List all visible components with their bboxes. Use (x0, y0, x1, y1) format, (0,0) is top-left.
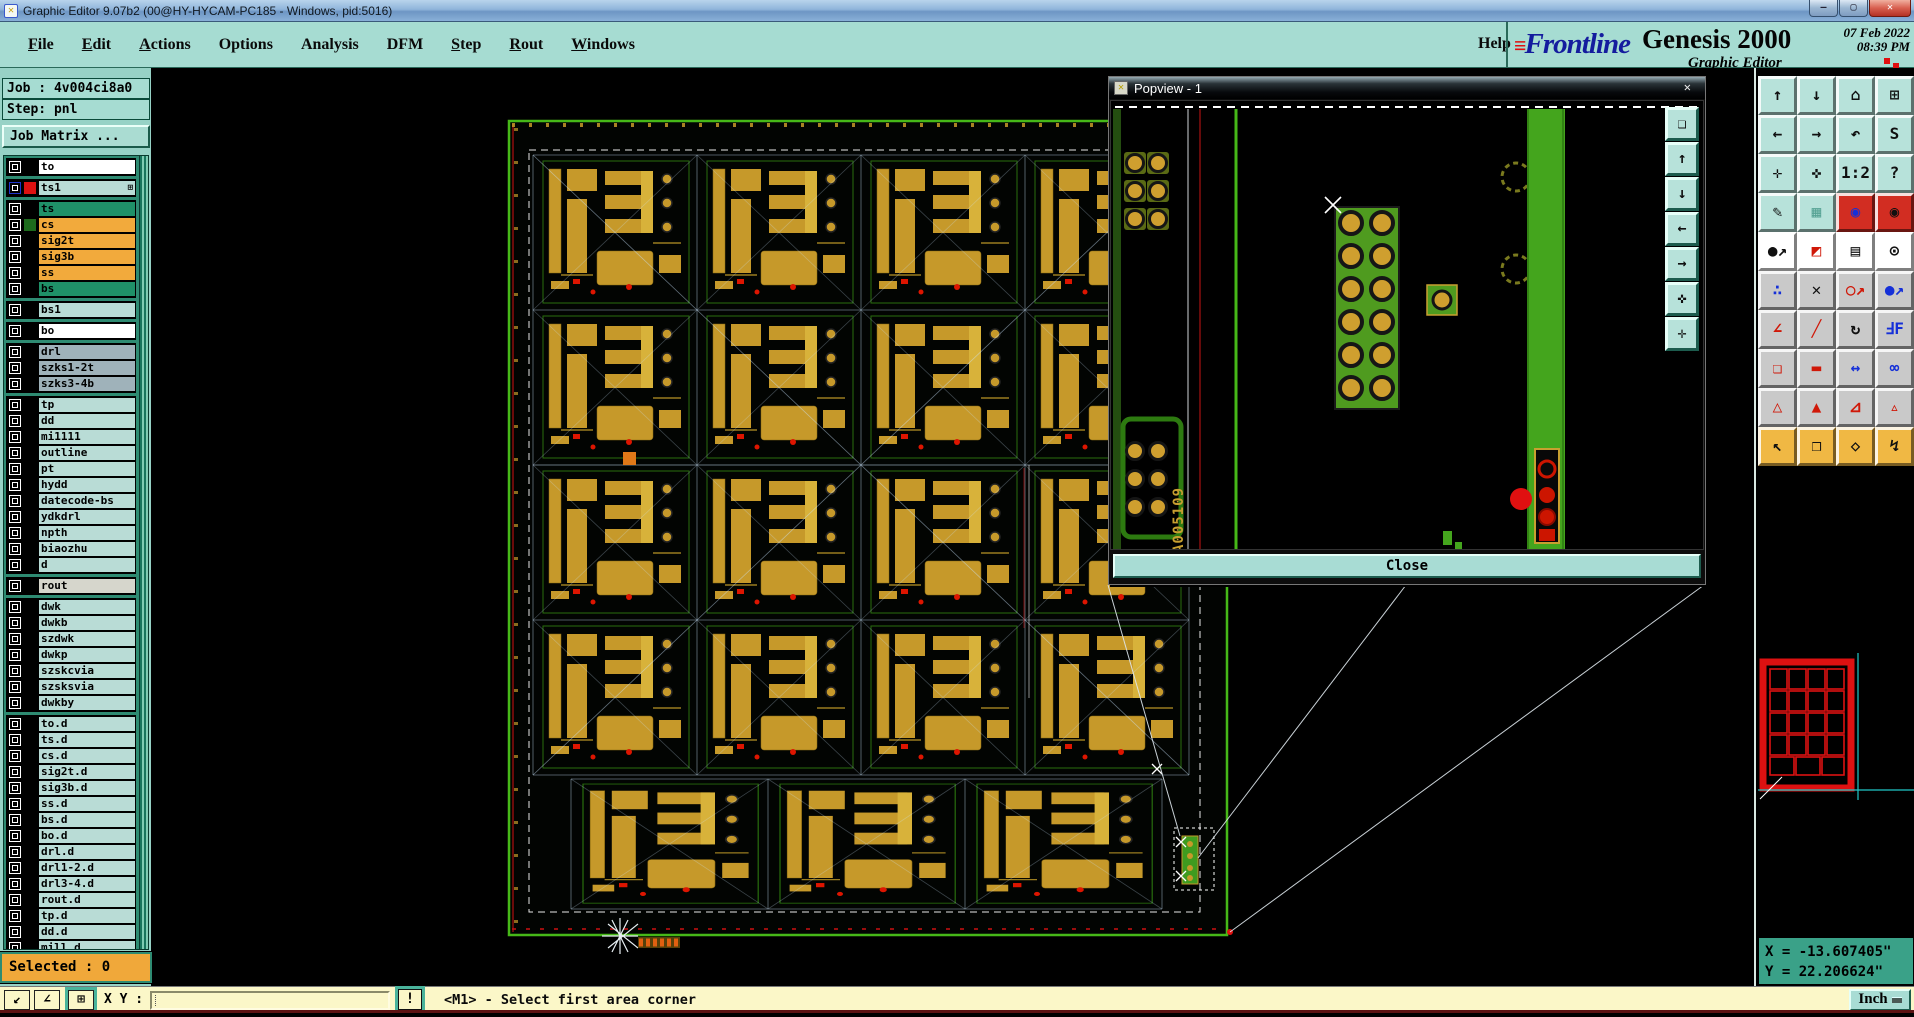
pan-down-button[interactable]: ↓ (1797, 76, 1836, 115)
layer-row[interactable]: bo.d (7, 828, 135, 844)
layer-group: bo (6, 322, 136, 340)
layer-checkbox[interactable] (9, 782, 21, 794)
layer-name: sig3b.d (41, 781, 87, 795)
layer-name: ydkdrl (41, 510, 81, 524)
layer-checkbox[interactable] (9, 511, 21, 523)
rotate-button[interactable]: ↻ (1836, 310, 1875, 349)
layer-name: d (41, 558, 48, 572)
layer-color-swatch[interactable] (24, 766, 36, 778)
layer-color-swatch[interactable] (24, 203, 36, 215)
layer-name: dwkp (41, 648, 68, 662)
layer-color-swatch[interactable] (24, 697, 36, 709)
xy-input[interactable] (150, 991, 390, 1010)
popview-icon: ✕ (1114, 81, 1128, 95)
layer-checkbox[interactable] (9, 750, 21, 762)
layer-row[interactable]: rout (7, 578, 135, 594)
layer-row[interactable]: szks3-4b (7, 376, 135, 392)
layer-row[interactable]: pt (7, 461, 135, 477)
layer-name: szsksvia (41, 680, 94, 694)
mirror-button[interactable]: ℲF (1875, 310, 1914, 349)
pan-left-button[interactable]: ← (1665, 212, 1699, 246)
layer-checkbox[interactable] (9, 325, 21, 337)
layer-name: szdwk (41, 632, 74, 646)
layer-checkbox[interactable] (9, 235, 21, 247)
sidebar: Job : 4v004ci8a0 Step: pnl Job Matrix ..… (0, 68, 152, 1013)
layer-checkbox[interactable] (9, 617, 21, 629)
coord-x: X = -13.607405" (1765, 942, 1913, 962)
menu-item[interactable]: Windows (557, 36, 649, 54)
layer-row[interactable]: tp.d (7, 908, 135, 924)
layer-name: pt (41, 462, 54, 476)
layer-row[interactable]: npth (7, 525, 135, 541)
brand-area: ≡Frontline Genesis 2000 Graphic Editor 0… (1508, 22, 1914, 68)
layer-color-swatch[interactable] (24, 814, 36, 826)
status-led-icon (1884, 58, 1890, 64)
single-pad (1427, 285, 1457, 315)
layer-color-swatch[interactable] (24, 431, 36, 443)
layer-group: drl szks1-2t szks3-4b (6, 343, 136, 393)
layer-color-swatch[interactable] (24, 543, 36, 555)
menu-bar: File Edit Actions Options Analysis DFM S… (0, 22, 1914, 68)
dropdown-indicator-icon (1892, 997, 1902, 1003)
layer-name: sig2t (41, 234, 74, 248)
scale-1-2-button[interactable]: 1:2 (1836, 154, 1875, 193)
help-button[interactable]: ? (1875, 154, 1914, 193)
units-dropdown[interactable]: Inch (1849, 989, 1911, 1011)
layer-color-swatch[interactable] (24, 910, 36, 922)
layer-group: to (6, 158, 136, 176)
layer-color-swatch[interactable] (24, 346, 36, 358)
layer-group: rout (6, 577, 136, 595)
layer-row[interactable]: to.d (7, 716, 135, 732)
layer-checkbox[interactable] (9, 910, 21, 922)
dashed-scale-bar (638, 937, 680, 948)
layer-name: ss (41, 266, 54, 280)
layer-checkbox[interactable] (9, 182, 21, 194)
expand-view-button[interactable]: ✛ (1665, 317, 1699, 351)
measure-width-button[interactable]: ↔ (1836, 349, 1875, 388)
layer-checkbox[interactable] (9, 543, 21, 555)
menu-items: File Edit Actions Options Analysis DFM S… (14, 22, 649, 68)
select-net-button[interactable]: ↯ (1875, 427, 1914, 466)
layer-name: rout.d (41, 893, 81, 907)
layer-checkbox[interactable] (9, 601, 21, 613)
trace-segment-button[interactable]: ▬ (1797, 349, 1836, 388)
layer-name: ss.d (41, 797, 68, 811)
layer-checkbox[interactable] (9, 878, 21, 890)
layer-row[interactable]: d (7, 557, 135, 573)
layer-checkbox[interactable] (9, 697, 21, 709)
layer-row[interactable]: bs (7, 281, 135, 297)
main-toolbar: ↑ ↓ ⌂ ⊞ ← → ↶ S ✛ ✜ 1:2 ? (1758, 76, 1914, 466)
status-message: <M1> - Select first area corner (444, 992, 696, 1008)
angle-measure-button[interactable]: ∠ (1758, 310, 1797, 349)
layer-color-swatch[interactable] (24, 251, 36, 263)
layer-row[interactable]: dwk (7, 599, 135, 615)
layer-checkbox[interactable] (9, 251, 21, 263)
delete-button[interactable]: ✕ (1797, 271, 1836, 310)
layer-name: outline (41, 446, 87, 460)
logo-arrows-icon: ≡ (1514, 33, 1525, 58)
graphic-options-button[interactable]: ✎ (1758, 193, 1797, 232)
popview-title: Popview - 1 (1134, 81, 1202, 96)
layer-color-swatch[interactable] (24, 846, 36, 858)
layer-name: sig2t.d (41, 765, 87, 779)
layer-row[interactable]: sig3b (7, 249, 135, 265)
layer-status-button[interactable]: ◉ (1875, 193, 1914, 232)
layer-color-swatch[interactable] (24, 681, 36, 693)
layer-row[interactable]: szsksvia (7, 679, 135, 695)
measure-squares-button[interactable]: ◩ (1797, 232, 1836, 271)
menu-item[interactable]: Analysis (287, 36, 373, 54)
layer-name: dwkb (41, 616, 68, 630)
layer-checkbox[interactable] (9, 718, 21, 730)
menu-item[interactable]: Options (205, 36, 287, 54)
layer-row[interactable]: drl1-2.d (7, 860, 135, 876)
app-icon: ✕ (4, 4, 18, 18)
menu-item[interactable]: Actions (125, 36, 205, 54)
layer-checkbox[interactable] (9, 766, 21, 778)
layer-checkbox[interactable] (9, 734, 21, 746)
layer-row[interactable]: biaozhu (7, 541, 135, 557)
layer-checkbox[interactable] (9, 463, 21, 475)
zoom-out-button[interactable]: ✛ (1758, 154, 1797, 193)
pan-down-button[interactable]: ↓ (1665, 177, 1699, 211)
board-serial-text: A005109 (1171, 487, 1187, 549)
menu-item[interactable]: Step (437, 36, 495, 54)
capture-view-button[interactable]: ❏ (1665, 107, 1699, 141)
layer-row[interactable]: ts (7, 201, 135, 217)
layer-group: ts1⊞ (6, 179, 136, 197)
layer-row[interactable]: ss (7, 265, 135, 281)
layer-list-scrollbar[interactable] (139, 156, 148, 949)
layer-name: tp (41, 398, 54, 412)
layer-checkbox[interactable] (9, 495, 21, 507)
layer-name: datecode-bs (41, 494, 114, 508)
layer-group: dwk dwkb szdwk dwkp (6, 598, 136, 712)
layer-name: hydd (41, 478, 68, 492)
layer-row[interactable]: tp (7, 397, 135, 413)
command-bar: ↙ ∠ ⊞ X Y : ! <M1> - Select first area c… (0, 986, 1914, 1013)
previous-view-button[interactable]: ↶ (1836, 115, 1875, 154)
layer-row[interactable]: bs1 (7, 302, 135, 318)
layer-color-swatch[interactable] (24, 219, 36, 231)
layer-name: dwkby (41, 696, 74, 710)
select-poly-button[interactable]: ◇ (1836, 427, 1875, 466)
layer-colors-button[interactable]: ◉ (1836, 193, 1875, 232)
layer-name: drl3-4.d (41, 877, 94, 891)
layer-row[interactable]: outline (7, 445, 135, 461)
serpentine-view-button[interactable]: S (1875, 115, 1914, 154)
job-matrix-button[interactable]: Job Matrix ... (2, 125, 150, 148)
triangle-tall-tool-button[interactable]: ▲ (1797, 388, 1836, 427)
select-feature-button[interactable]: ●↗ (1758, 232, 1797, 271)
layer-checkbox[interactable] (9, 415, 21, 427)
layer-color-swatch[interactable] (24, 942, 36, 950)
layer-checkbox[interactable] (9, 283, 21, 295)
layer-row[interactable]: szdwk (7, 631, 135, 647)
layer-color-swatch[interactable] (24, 750, 36, 762)
pan-right-button[interactable]: → (1665, 247, 1699, 281)
layer-name: to.d (41, 717, 68, 731)
layer-name: szks3-4b (41, 377, 94, 391)
layer-name: dd (41, 414, 54, 428)
layer-checkbox[interactable] (9, 346, 21, 358)
split-xy-button[interactable]: ⊞ (1875, 76, 1914, 115)
layer-color-swatch[interactable] (24, 479, 36, 491)
layer-row[interactable]: cs.d (7, 748, 135, 764)
window-title: Graphic Editor 9.07b2 (00@HY-HYCAM-PC185… (23, 4, 392, 18)
layer-row[interactable]: sig3b.d (7, 780, 135, 796)
layer-name: sig3b (41, 250, 74, 264)
layer-name: biaozhu (41, 542, 87, 556)
text-caret (155, 995, 156, 1006)
layer-group: ts cs sig2t sig3b (6, 200, 136, 298)
layer-badge-icon: ⊞ (128, 181, 133, 195)
layer-color-swatch[interactable] (24, 463, 36, 475)
triangle-trap-tool-button[interactable]: ⊿ (1836, 388, 1875, 427)
restore-button[interactable]: ▢ (1839, 0, 1868, 17)
selected-count-bar: Selected : 0 (0, 952, 152, 983)
layer-checkbox[interactable] (9, 894, 21, 906)
layer-row[interactable]: szks1-2t (7, 360, 135, 376)
layer-row[interactable]: mill.d (7, 940, 135, 950)
layer-name: mi1111 (41, 430, 81, 444)
layer-checkbox[interactable] (9, 219, 21, 231)
application-window: ✕ Graphic Editor 9.07b2 (00@HY-HYCAM-PC1… (0, 0, 1914, 1013)
pan-left-button[interactable]: ← (1758, 115, 1797, 154)
layer-color-swatch[interactable] (24, 878, 36, 890)
pan-right-button[interactable]: → (1797, 115, 1836, 154)
popview-drawing: A005109 (1111, 101, 1703, 549)
right-column: ↑ ↓ ⌂ ⊞ ← → ↶ S ✛ ✜ 1:2 ? (1756, 68, 1914, 1013)
layer-checkbox[interactable] (9, 161, 21, 173)
layer-row[interactable]: cs (7, 217, 135, 233)
layer-checkbox[interactable] (9, 665, 21, 677)
net-points-button[interactable]: ∴ (1758, 271, 1797, 310)
menu-item[interactable]: Rout (495, 36, 557, 54)
layer-checkbox[interactable] (9, 681, 21, 693)
layer-row[interactable]: hydd (7, 477, 135, 493)
layer-row[interactable]: bo (7, 323, 135, 339)
layer-color-swatch[interactable] (24, 665, 36, 677)
layer-color-swatch[interactable] (24, 304, 36, 316)
select-frame-button[interactable]: ❒ (1797, 427, 1836, 466)
move-feature-button[interactable]: ●↗ (1875, 271, 1914, 310)
layer-group: tp dd mi1111 outline (6, 396, 136, 574)
layer-checkbox[interactable] (9, 942, 21, 950)
home-view-button[interactable]: ⌂ (1836, 76, 1875, 115)
window-titlebar[interactable]: ✕ Graphic Editor 9.07b2 (00@HY-HYCAM-PC1… (0, 0, 1914, 22)
layer-color-swatch[interactable] (24, 399, 36, 411)
center-view-button[interactable]: ✜ (1665, 282, 1699, 316)
layer-checkbox[interactable] (9, 362, 21, 374)
layer-color-swatch[interactable] (24, 580, 36, 592)
layer-checkbox[interactable] (9, 527, 21, 539)
layer-checkbox[interactable] (9, 846, 21, 858)
layer-row[interactable]: szskcvia (7, 663, 135, 679)
layer-color-swatch[interactable] (24, 926, 36, 938)
layer-checkbox[interactable] (9, 447, 21, 459)
layer-name: drl (41, 345, 61, 359)
popview-toolbar: ❏ ↑ ↓ ← → ✜ ✛ (1665, 107, 1700, 352)
layer-row[interactable]: sig2t (7, 233, 135, 249)
layer-row[interactable]: rout.d (7, 892, 135, 908)
snap-angle-button[interactable]: ∠ (34, 990, 60, 1010)
layer-checkbox[interactable] (9, 649, 21, 661)
layer-group: bs1 (6, 301, 136, 319)
layer-color-swatch[interactable] (24, 862, 36, 874)
copy-to-layer-button[interactable]: ❏ (1758, 349, 1797, 388)
layer-checkbox[interactable] (9, 633, 21, 645)
triangle-base-tool-button[interactable]: ▵ (1875, 388, 1914, 427)
select-area-button[interactable]: ⊙ (1875, 232, 1914, 271)
layer-row[interactable]: dd.d (7, 924, 135, 940)
layer-color-swatch[interactable] (24, 734, 36, 746)
layer-name: szks1-2t (41, 361, 94, 375)
layer-row[interactable]: sig2t.d (7, 764, 135, 780)
layer-checkbox[interactable] (9, 203, 21, 215)
layer-row[interactable]: dwkb (7, 615, 135, 631)
layer-name: drl1-2.d (41, 861, 94, 875)
layer-color-swatch[interactable] (24, 894, 36, 906)
layer-row[interactable]: ydkdrl (7, 509, 135, 525)
layer-row[interactable]: drl (7, 344, 135, 360)
layer-name: bs (41, 282, 54, 296)
select-single-button[interactable]: ↖ (1758, 427, 1797, 466)
layer-color-swatch[interactable] (24, 161, 36, 173)
layer-color-swatch[interactable] (24, 267, 36, 279)
layer-row[interactable]: dwkp (7, 647, 135, 663)
layer-color-swatch[interactable] (24, 559, 36, 571)
frontline-logo: ≡Frontline (1514, 28, 1630, 61)
grid-button[interactable]: ▦ (1797, 193, 1836, 232)
layer-row[interactable]: to (7, 159, 135, 175)
menu-item[interactable]: File (14, 36, 68, 54)
time-text: 08:39 PM (1832, 40, 1910, 54)
snap-corner-button[interactable]: ↙ (4, 990, 30, 1010)
zoom-in-button[interactable]: ✜ (1797, 154, 1836, 193)
layer-row[interactable]: ts.d (7, 732, 135, 748)
layer-color-swatch[interactable] (24, 378, 36, 390)
layer-color-swatch[interactable] (24, 511, 36, 523)
layer-checkbox[interactable] (9, 399, 21, 411)
layer-color-swatch[interactable] (24, 235, 36, 247)
layer-checkbox[interactable] (9, 798, 21, 810)
layer-name: bo.d (41, 829, 68, 843)
layer-row[interactable]: datecode-bs (7, 493, 135, 509)
layer-color-swatch[interactable] (24, 798, 36, 810)
layer-color-swatch[interactable] (24, 601, 36, 613)
minimize-button[interactable]: — (1809, 0, 1838, 17)
layer-name: bs1 (41, 303, 61, 317)
date-text: 07 Feb 2022 (1832, 26, 1910, 40)
layer-checkbox[interactable] (9, 431, 21, 443)
layer-checkbox[interactable] (9, 814, 21, 826)
layer-checkbox[interactable] (9, 580, 21, 592)
product-name: Genesis 2000 (1642, 24, 1791, 55)
layer-checkbox[interactable] (9, 479, 21, 491)
coord-y: Y = 22.206624" (1765, 962, 1913, 982)
xy-label: X Y : (104, 992, 143, 1007)
layer-color-swatch[interactable] (24, 415, 36, 427)
layer-color-swatch[interactable] (24, 782, 36, 794)
layer-color-swatch[interactable] (24, 182, 36, 194)
layer-color-swatch[interactable] (24, 447, 36, 459)
layer-row[interactable]: bs.d (7, 812, 135, 828)
popview-close-button[interactable]: Close (1113, 554, 1701, 578)
layer-color-swatch[interactable] (24, 633, 36, 645)
layer-name: ts (41, 202, 54, 216)
layer-row[interactable]: dwkby (7, 695, 135, 711)
layer-row[interactable]: dd (7, 413, 135, 429)
layer-row[interactable]: ts1⊞ (7, 180, 135, 196)
layer-checkbox[interactable] (9, 559, 21, 571)
layer-checkbox[interactable] (9, 267, 21, 279)
edge-marker (623, 452, 636, 465)
menu-item[interactable]: DFM (373, 36, 437, 54)
layer-row[interactable]: mi1111 (7, 429, 135, 445)
overview-thumbnail[interactable] (1758, 653, 1914, 800)
quadrant-mode-button[interactable]: ⊞ (68, 990, 94, 1010)
layer-color-swatch[interactable] (24, 830, 36, 842)
layer-name: to (41, 160, 54, 174)
ruler-button[interactable]: ▤ (1836, 232, 1875, 271)
layer-name: cs (41, 218, 54, 232)
layer-color-swatch[interactable] (24, 283, 36, 295)
layer-checkbox[interactable] (9, 830, 21, 842)
window-controls: — ▢ ✕ (1808, 0, 1911, 17)
popview-close-x-icon[interactable]: ✕ (1684, 80, 1691, 94)
pan-up-button[interactable]: ↑ (1665, 142, 1699, 176)
layer-color-swatch[interactable] (24, 325, 36, 337)
layer-group: to.d ts.d cs.d sig2t.d (6, 715, 136, 950)
layer-name: szskcvia (41, 664, 94, 678)
pan-up-button[interactable]: ↑ (1758, 76, 1797, 115)
triangle-tool-button[interactable]: △ (1758, 388, 1797, 427)
menu-item[interactable]: Edit (68, 36, 125, 54)
prompt-button[interactable]: ! (398, 989, 422, 1010)
layer-color-swatch[interactable] (24, 362, 36, 374)
touching-copper-button[interactable]: ∞ (1875, 349, 1914, 388)
layer-row[interactable]: drl.d (7, 844, 135, 860)
layer-color-swatch[interactable] (24, 718, 36, 730)
job-label: Job : 4v004ci8a0 (2, 78, 150, 99)
layer-checkbox[interactable] (9, 862, 21, 874)
close-button[interactable]: ✕ (1869, 0, 1911, 17)
center-pad-array (1325, 197, 1399, 409)
layer-color-swatch[interactable] (24, 495, 36, 507)
layer-checkbox[interactable] (9, 926, 21, 938)
layer-checkbox[interactable] (9, 378, 21, 390)
layer-row[interactable]: drl3-4.d (7, 876, 135, 892)
layer-checkbox[interactable] (9, 304, 21, 316)
popview-canvas[interactable]: A005109 (1110, 100, 1704, 550)
coordinate-readout: X = -13.607405" Y = 22.206624" (1758, 937, 1914, 985)
popview-window: ✕ Popview - 1 ✕ (1108, 76, 1706, 585)
layer-name: drl.d (41, 845, 74, 859)
layer-color-swatch[interactable] (24, 527, 36, 539)
copy-feature-button[interactable]: ○↗ (1836, 271, 1875, 310)
layer-color-swatch[interactable] (24, 617, 36, 629)
layer-color-swatch[interactable] (24, 649, 36, 661)
overview-drawing (1758, 653, 1914, 800)
layer-row[interactable]: ss.d (7, 796, 135, 812)
popview-titlebar[interactable]: ✕ Popview - 1 ✕ (1109, 77, 1705, 99)
slope-line-button[interactable]: ╱ (1797, 310, 1836, 349)
layer-name: ts.d (41, 733, 68, 747)
layer-name: mill.d (41, 941, 81, 950)
